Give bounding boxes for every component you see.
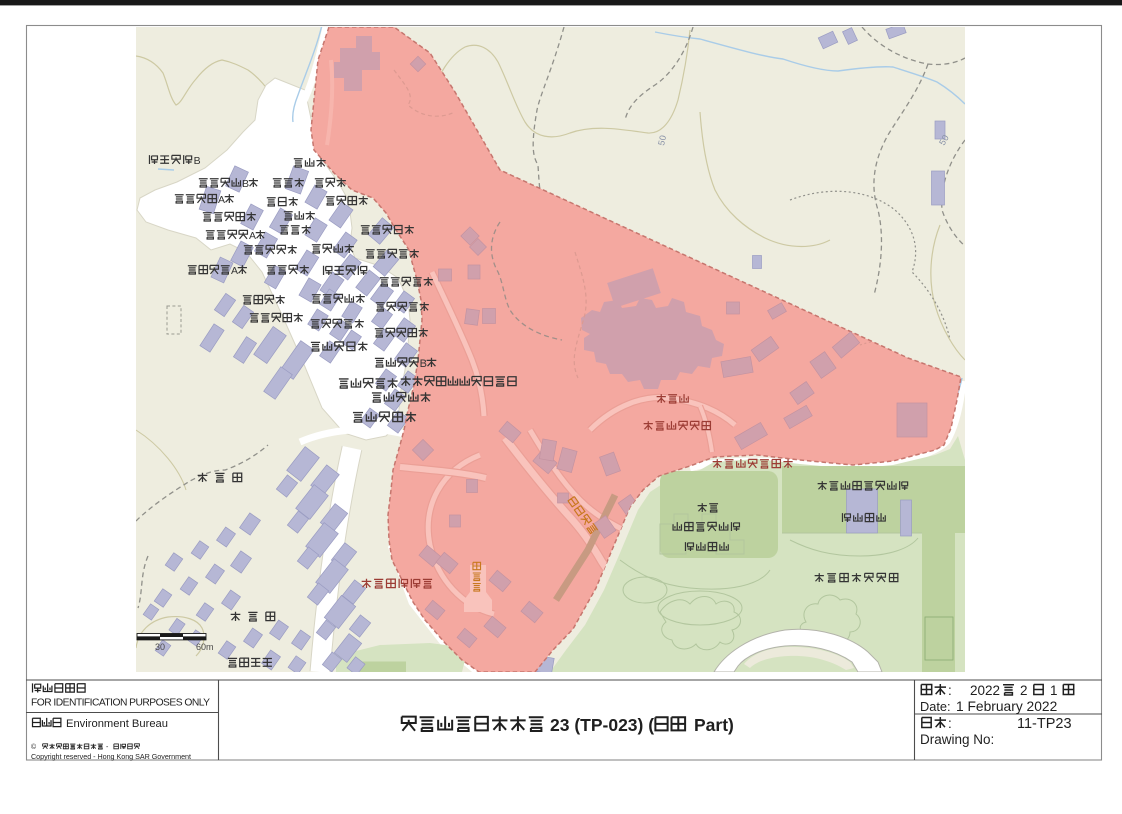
svg-text:Part): Part) <box>694 715 734 735</box>
svg-text::: : <box>948 716 952 731</box>
svg-text:©: © <box>31 743 37 751</box>
svg-text:Environment Bureau: Environment Bureau <box>66 718 168 730</box>
svg-text:A: A <box>249 230 256 242</box>
svg-text:FOR IDENTIFICATION PURPOSES ON: FOR IDENTIFICATION PURPOSES ONLY <box>31 698 210 709</box>
svg-text:A: A <box>231 265 238 277</box>
svg-text:23 (TP-023) (: 23 (TP-023) ( <box>550 715 654 735</box>
svg-text:B: B <box>242 178 249 190</box>
svg-text:Date:: Date: <box>920 699 951 714</box>
svg-text:A: A <box>218 194 225 206</box>
svg-text:Copyright reserved - Hong Kong: Copyright reserved - Hong Kong SAR Gover… <box>31 752 191 761</box>
svg-text:1: 1 <box>1050 683 1058 698</box>
svg-text:2022: 2022 <box>970 683 1000 698</box>
svg-text:60m: 60m <box>196 642 214 652</box>
svg-text:1 February 2022: 1 February 2022 <box>956 699 1057 714</box>
svg-text:2: 2 <box>1020 683 1028 698</box>
svg-text:Drawing No:: Drawing No: <box>920 732 994 747</box>
svg-text:11-TP23: 11-TP23 <box>1017 716 1072 732</box>
svg-text::: : <box>948 683 952 698</box>
svg-text:B: B <box>420 358 427 370</box>
svg-text:30: 30 <box>155 642 165 652</box>
svg-text:B: B <box>194 155 201 167</box>
